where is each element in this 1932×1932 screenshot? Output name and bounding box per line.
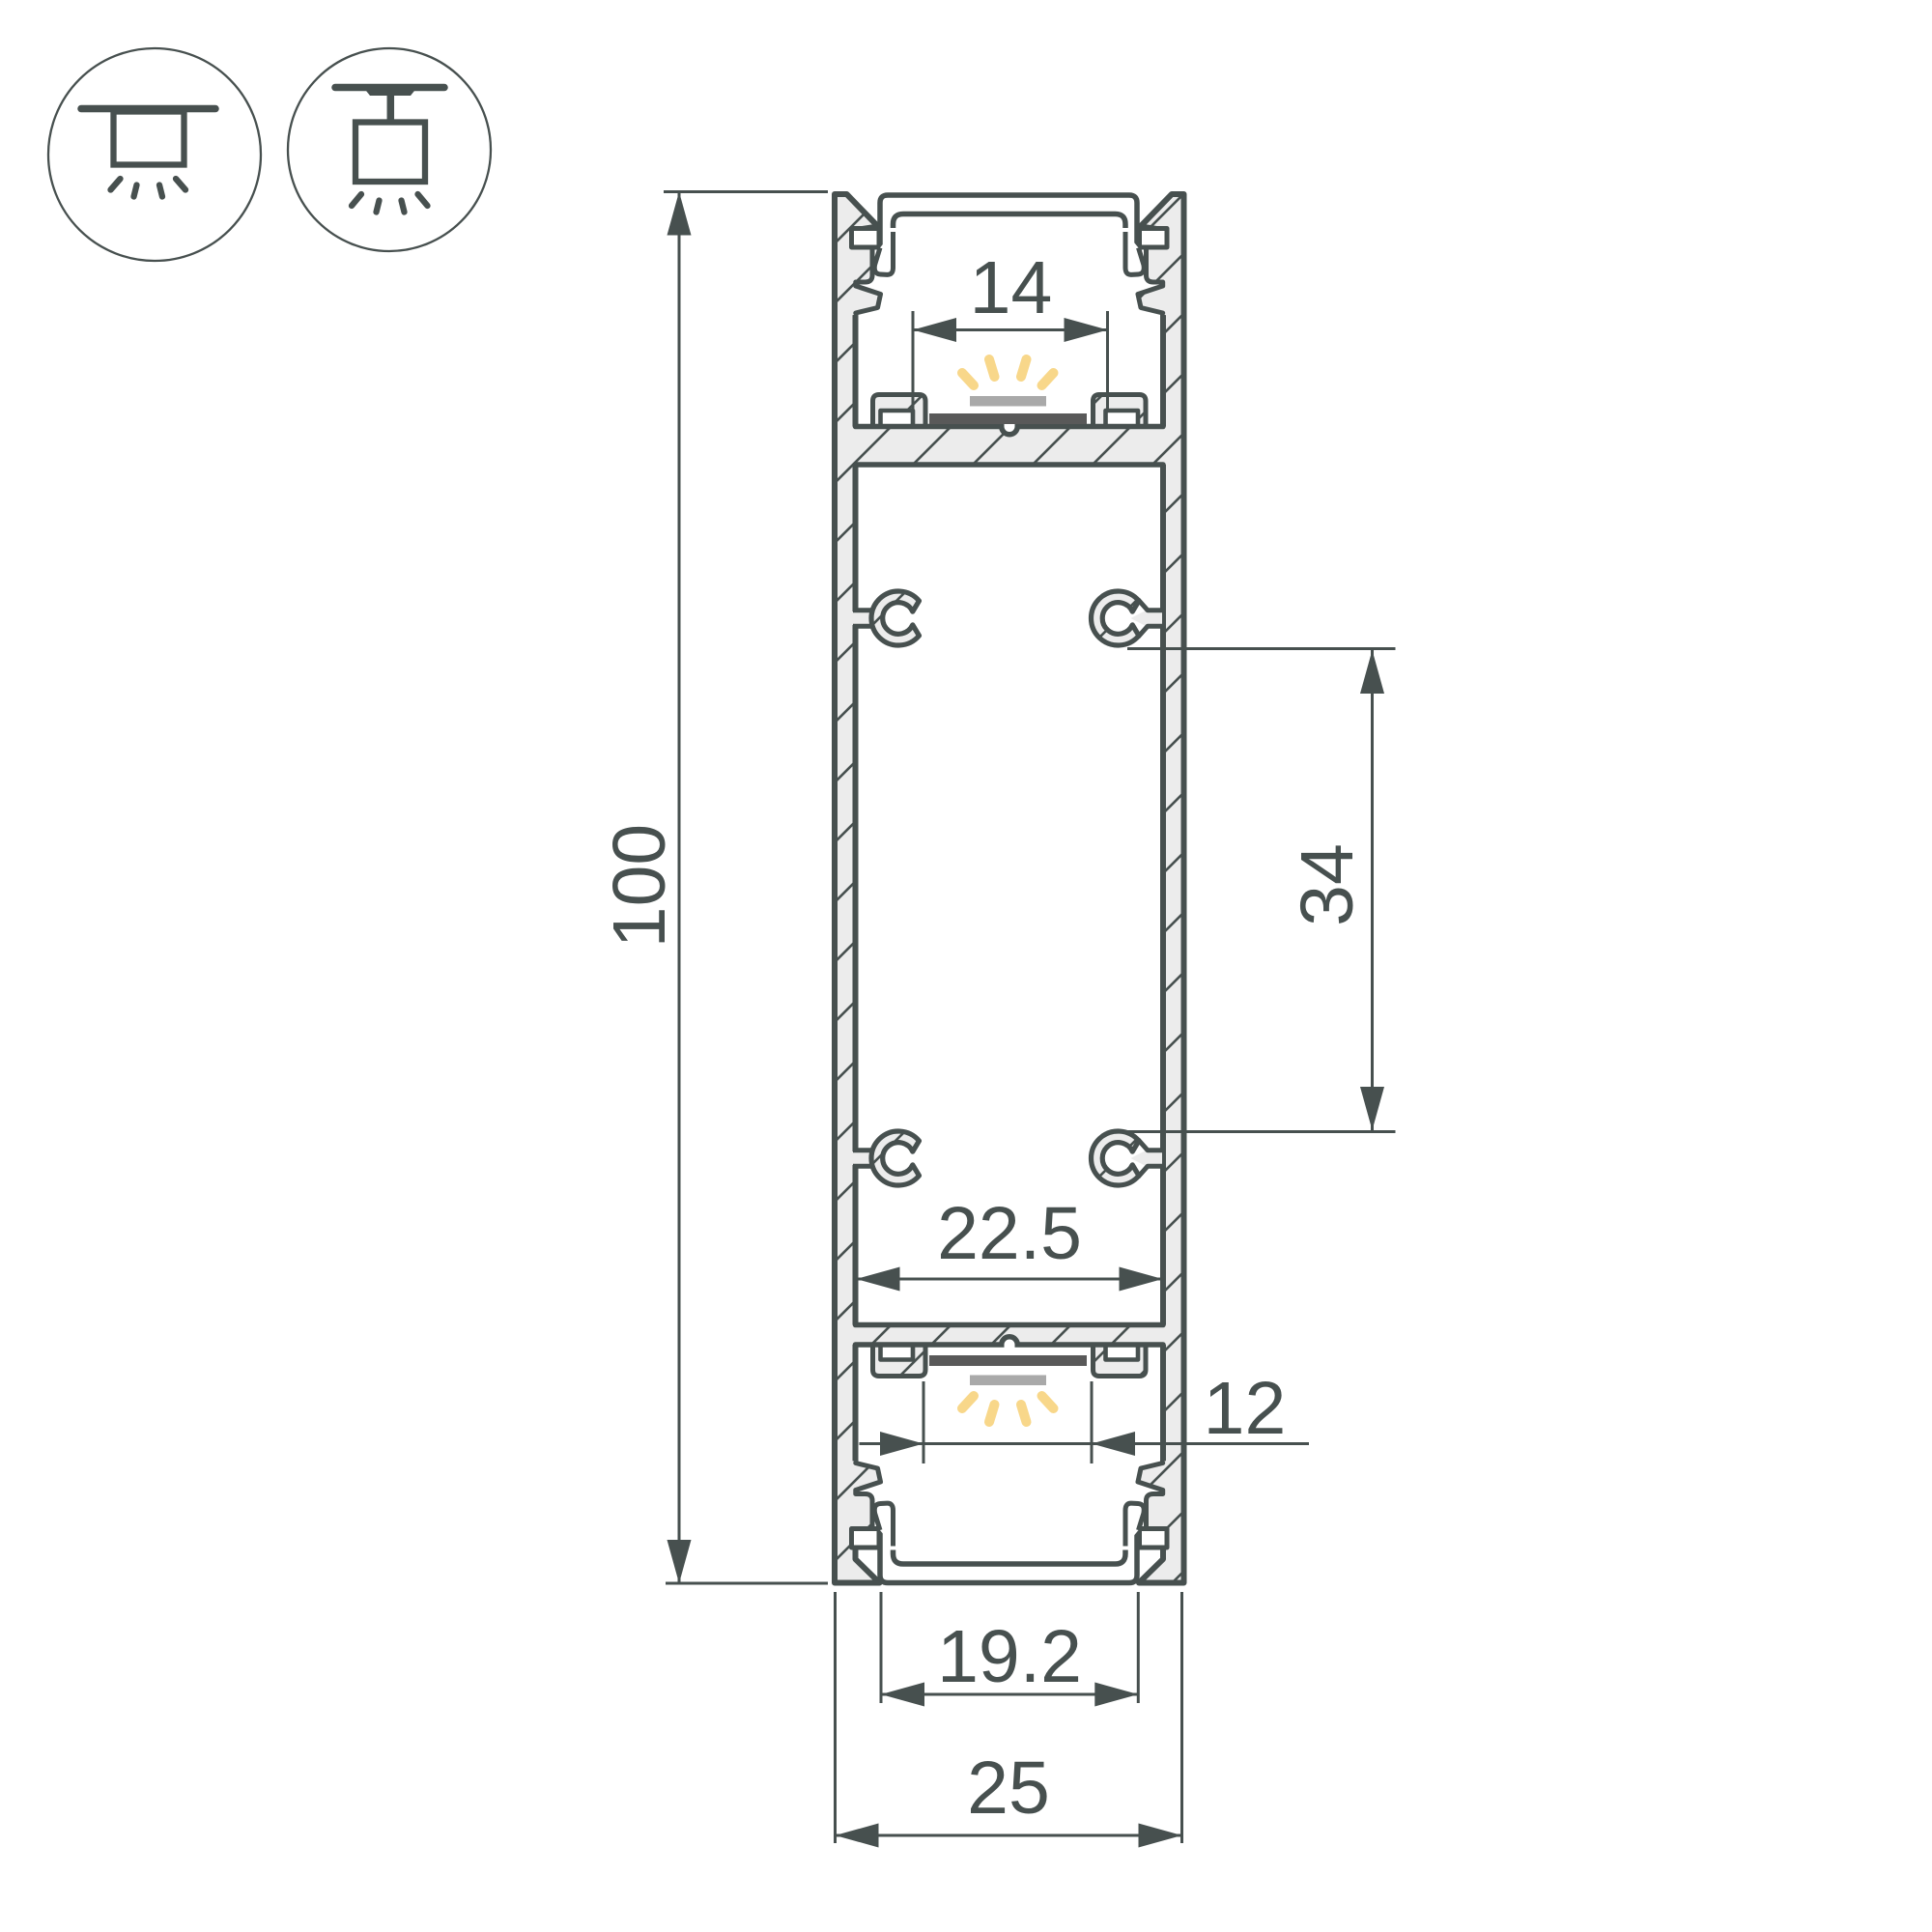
svg-text:14: 14 [970,246,1053,329]
svg-text:19.2: 19.2 [937,1615,1082,1698]
svg-text:25: 25 [967,1747,1050,1830]
svg-text:12: 12 [1204,1367,1287,1450]
svg-text:34: 34 [1286,843,1369,926]
svg-text:100: 100 [598,824,681,948]
svg-text:22.5: 22.5 [937,1192,1082,1275]
